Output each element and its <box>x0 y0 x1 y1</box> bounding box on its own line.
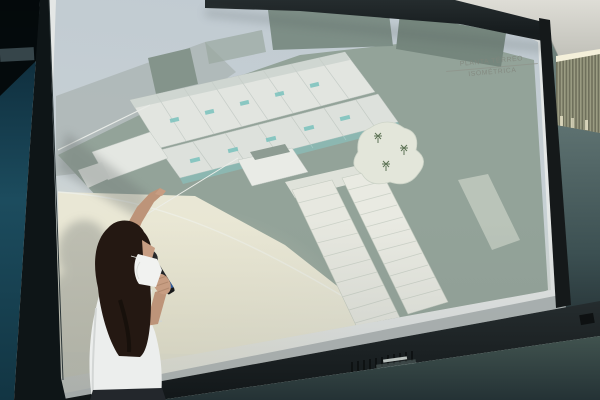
photo-presentation-room: PLANTA TÉRREO ISOMÉTRICA <box>0 0 600 400</box>
window-blinds <box>554 48 600 136</box>
presenter-pants <box>90 388 166 400</box>
wall-vent <box>0 47 34 62</box>
